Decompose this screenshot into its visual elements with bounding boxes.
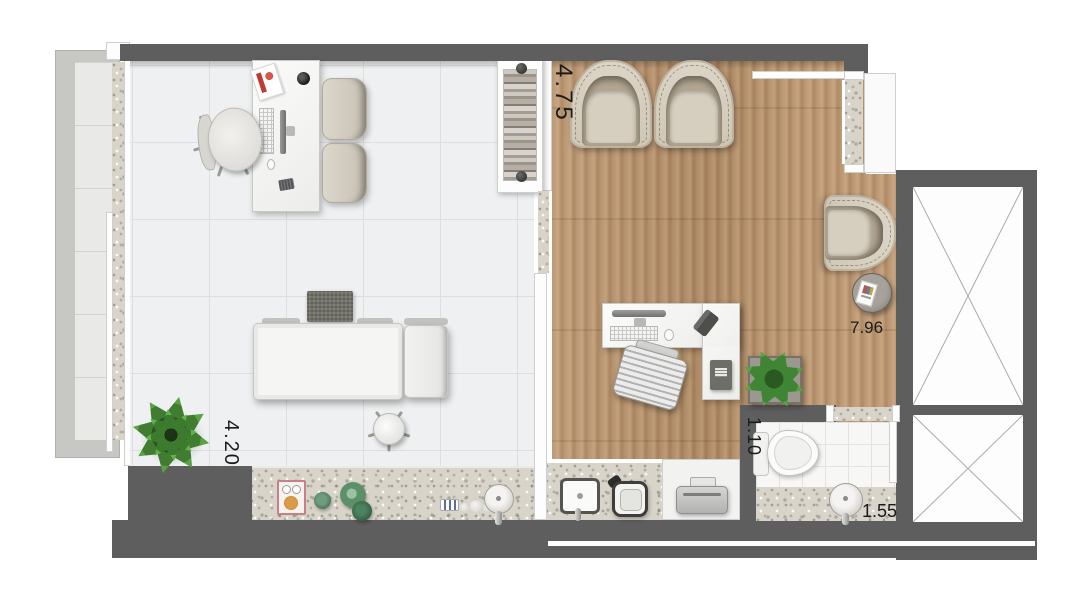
bathroom-jamb-right <box>892 405 900 422</box>
dimension-bathroom-counter: 1.55 <box>862 501 897 522</box>
office-sink-faucet <box>495 511 502 525</box>
coffee-cup <box>297 72 310 85</box>
printer <box>676 486 728 514</box>
equipment-mat <box>307 291 353 322</box>
green-bowl-small <box>314 492 331 509</box>
entry-jamb-top <box>844 71 864 80</box>
entry-column <box>864 73 896 173</box>
elevator-shaft-2 <box>913 415 1023 522</box>
mouse-2 <box>664 329 674 341</box>
entry-jamb-bottom <box>844 164 864 173</box>
kettle-lid <box>620 489 642 511</box>
square-sink-faucet <box>575 508 581 521</box>
bookend-top <box>516 63 527 74</box>
notebook-label <box>715 368 727 377</box>
dimension-right-room: 4.75 <box>549 64 577 123</box>
table-rail <box>404 318 448 325</box>
elevator-shaft-1 <box>913 187 1023 405</box>
bathroom-jamb-left <box>826 405 834 422</box>
toilet-seat <box>774 436 812 470</box>
armchair-cushion <box>828 210 871 256</box>
bottom-wall-reveal-line <box>548 541 1035 546</box>
wall-mass-bottom-left <box>128 466 252 530</box>
dimension-overall-depth: 7.96 <box>850 318 883 338</box>
pebble <box>470 500 482 512</box>
office-task-chair <box>192 97 270 184</box>
bookshelf-books <box>503 69 537 181</box>
balcony-sliding-door <box>106 212 113 452</box>
printer-slot <box>683 493 721 496</box>
serving-tray <box>277 480 306 515</box>
sink-drain <box>496 496 501 501</box>
wall-shadow <box>130 61 534 69</box>
entry-vestibule-floor <box>844 80 863 164</box>
cup <box>282 485 291 494</box>
stool <box>372 413 406 447</box>
plate <box>284 496 298 510</box>
partition-glass-track <box>538 191 549 273</box>
floor-plan: 4.75 7.96 4.20 1.10 1.55 <box>0 0 1080 613</box>
armchair-1 <box>570 60 652 148</box>
bathroom-door-leaf <box>889 421 897 483</box>
armchair-cushion <box>670 90 718 143</box>
pebble <box>460 503 469 512</box>
monitor-stand <box>286 126 295 136</box>
bathroom-faucet <box>842 513 849 525</box>
bathroom-sink-drain <box>843 496 848 501</box>
magazine-graphic <box>861 295 871 300</box>
guest-chair-1 <box>322 78 367 140</box>
stool-seat <box>373 413 405 445</box>
monitor-2 <box>612 310 666 317</box>
soap-dish <box>440 499 459 511</box>
square-sink-drain <box>577 493 583 499</box>
exam-table-head-section <box>404 325 448 398</box>
cup <box>292 485 301 494</box>
magazine-graphic <box>264 71 274 81</box>
dimension-bathroom: 1.10 <box>743 417 764 456</box>
magazine-graphic <box>862 285 874 295</box>
dimension-left-room: 4.20 <box>219 420 242 467</box>
armchair-cushion <box>586 90 635 143</box>
balcony-window-track <box>112 62 124 440</box>
armchair-3 <box>824 195 896 271</box>
shaft-cross-icon <box>913 415 1023 522</box>
kettle <box>612 481 648 517</box>
notebook <box>710 360 732 390</box>
armchair-2 <box>654 60 734 148</box>
guest-chair-2 <box>322 143 367 203</box>
outer-wall-top <box>120 44 868 61</box>
bathroom-threshold <box>832 407 894 421</box>
green-bowl-dark <box>352 501 372 521</box>
entry-door-track <box>842 80 845 164</box>
partition-wall-bottom <box>534 273 547 520</box>
shaft-cross-icon <box>913 187 1023 405</box>
entry-door-leaf <box>752 71 846 79</box>
exam-table <box>253 323 403 400</box>
bookend-bottom <box>516 171 527 182</box>
